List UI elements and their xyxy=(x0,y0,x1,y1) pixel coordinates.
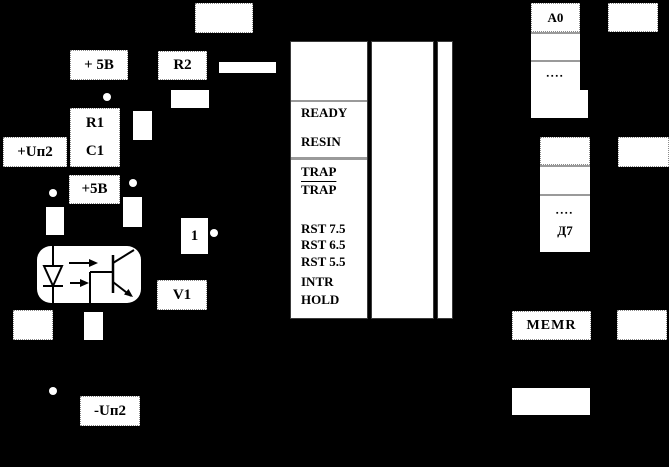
cpu-section-divider xyxy=(291,157,367,160)
blank-box-top-center xyxy=(195,3,253,33)
junction-dot xyxy=(210,229,218,237)
component-rect xyxy=(123,197,142,227)
cpu-pin-hold: HOLD xyxy=(301,293,339,306)
blank-box-bottom-left xyxy=(13,310,53,340)
resistor-body-bar xyxy=(219,62,276,73)
resistor-r2-label: R2 xyxy=(158,51,207,80)
memr-signal-label: MEMR xyxy=(512,311,591,340)
junction-dot xyxy=(103,93,111,101)
power-label-minus-up2: -Uп2 xyxy=(80,396,140,426)
cpu-right-column xyxy=(437,41,453,319)
component-rect xyxy=(133,111,152,140)
data-bus-d7-label: Д7 xyxy=(557,223,572,239)
cpu-pin-trap: TRAP xyxy=(301,165,336,178)
component-rect xyxy=(46,207,64,235)
component-rect xyxy=(84,312,103,340)
resistor-r1-label: R1 xyxy=(86,115,104,132)
cpu-pin-resin: RESIN xyxy=(301,135,341,148)
blank-box-right-lower xyxy=(617,310,667,340)
data-bus-cell xyxy=(540,137,590,165)
data-bus-cell xyxy=(540,167,590,194)
cpu-pin-column: READY RESIN TRAP TRAP RST 7.5 RST 6.5 RS… xyxy=(290,41,368,319)
cpu-pin-rst55: RST 5.5 xyxy=(301,255,346,268)
cpu-pin-trap-inverted: TRAP xyxy=(301,183,336,196)
address-bus-cell xyxy=(531,34,580,60)
power-label-plus-up2: +Uп2 xyxy=(3,137,67,167)
cpu-section-divider xyxy=(291,100,367,102)
data-bus-cell-d7: ▪▪▪▪ Д7 xyxy=(540,196,590,252)
cpu-pin-rst75: RST 7.5 xyxy=(301,222,346,235)
cpu-pin-ready: READY xyxy=(301,106,347,119)
optocoupler-icon xyxy=(37,246,141,303)
logic-gate-one: 1 xyxy=(181,218,208,254)
r1-c1-label-box: R1 C1 xyxy=(70,108,120,167)
blank-box-right-middle xyxy=(618,137,669,167)
address-bus-cell-wide xyxy=(531,90,588,118)
power-label-plus5v: +5В xyxy=(69,175,120,204)
junction-dot xyxy=(49,189,57,197)
cpu-pin-intr: INTR xyxy=(301,275,334,288)
circuit-diagram: + 5В R2 R1 C1 +Uп2 +5В xyxy=(0,0,669,467)
power-label-plus5v-top: + 5В xyxy=(70,50,128,80)
optocoupler-symbol xyxy=(37,246,141,303)
blank-box-bottom-right xyxy=(512,388,590,415)
junction-dot xyxy=(49,387,57,395)
address-bus-cell-a0: A0 xyxy=(531,3,580,32)
blank-box-top-right xyxy=(608,3,658,32)
cpu-body-column xyxy=(371,41,434,319)
address-bus-cell-dots: ▪▪▪▪ xyxy=(531,62,580,90)
cpu-pin-rst65: RST 6.5 xyxy=(301,238,346,251)
capacitor-c1-label: C1 xyxy=(86,143,104,160)
transistor-v1-label: V1 xyxy=(157,280,207,310)
blank-box-below-r2 xyxy=(171,90,209,108)
data-bus-dots: ▪▪▪▪ xyxy=(556,210,574,217)
junction-dot xyxy=(129,179,137,187)
